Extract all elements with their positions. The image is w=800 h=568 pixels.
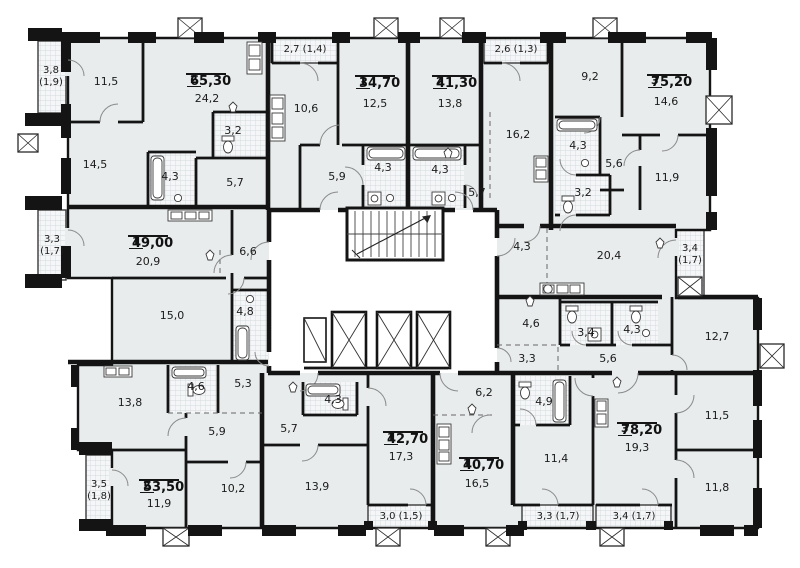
- room-area-label: 4,3: [374, 162, 392, 174]
- bathtub-icon: [236, 326, 249, 360]
- room-area-label: 15,0: [160, 310, 185, 322]
- balcony-area-label: 3,4 (1,7): [613, 511, 656, 523]
- room-area-label: 3,2: [574, 187, 592, 199]
- room-area-label: 13,9: [305, 481, 330, 493]
- apartment-label: 241,30: [432, 75, 472, 77]
- room-area-label: 4,3: [431, 164, 449, 176]
- sink-icon: [386, 194, 393, 201]
- room-area-label: 11,5: [94, 76, 119, 88]
- room-area-label: 16,5: [465, 478, 490, 490]
- stove-icon: [270, 95, 285, 141]
- room-area-label: 16,2: [506, 129, 531, 141]
- apartment-label: 265,30: [186, 73, 226, 75]
- sink-icon: [174, 194, 181, 201]
- room-area-label: 5,7: [280, 423, 298, 435]
- room-area-label: 11,8: [705, 482, 730, 494]
- floor-plan: 265,30134,70241,30375,20149,00253,50142,…: [0, 0, 800, 568]
- apartment-label: 142,70: [383, 431, 423, 433]
- balcony-area-label: 3,8 (1,9): [39, 65, 63, 89]
- balcony-area-label: 2,6 (1,3): [495, 44, 538, 56]
- bathtub-icon: [367, 147, 405, 160]
- room-area-label: 4,6: [187, 381, 205, 393]
- room-area-label: 19,3: [625, 442, 650, 454]
- room-area-label: 4,3: [623, 324, 641, 336]
- apartment-total-area: 42,70: [384, 432, 431, 448]
- stove-icon: [247, 42, 262, 74]
- room-area-label: 20,4: [597, 250, 622, 262]
- washer-icon: [432, 192, 445, 205]
- room-area-label: 11,5: [705, 410, 730, 422]
- room-area-label: 5,9: [208, 426, 226, 438]
- room-area-label: 14,6: [654, 96, 679, 108]
- sink-icon: [246, 295, 253, 302]
- room-area-label: 3,4: [577, 327, 595, 339]
- ac-unit-icon: [600, 528, 624, 546]
- apartment-total-area: 41,30: [433, 76, 480, 92]
- room-area-label: 20,9: [136, 256, 161, 268]
- room-area-label: 6,6: [239, 246, 257, 258]
- room-area-label: 4,3: [513, 241, 531, 253]
- bathtub-icon: [413, 147, 461, 160]
- room-area-label: 4,3: [324, 394, 342, 406]
- apartment-total-area: 49,00: [129, 236, 176, 252]
- apartment-total-area: 53,50: [140, 480, 187, 496]
- room-area-label: 6,2: [475, 387, 493, 399]
- apartment-label: 375,20: [647, 74, 687, 76]
- room-area-label: 5,7: [468, 187, 486, 199]
- room-area-label: 5,7: [226, 177, 244, 189]
- room-area-label: 5,6: [599, 353, 617, 365]
- ac-unit-icon: [678, 277, 702, 296]
- staircase: [347, 208, 443, 260]
- room-area-label: 11,4: [544, 453, 569, 465]
- room-area-label: 12,7: [705, 331, 730, 343]
- stove-icon: [168, 210, 212, 221]
- apartment-label: 149,00: [128, 235, 168, 237]
- room-area-label: 13,8: [438, 98, 463, 110]
- sink-icon: [581, 159, 588, 166]
- room-area-label: 3,3: [518, 353, 536, 365]
- room-area-label: 12,5: [363, 98, 388, 110]
- apartment-total-area: 40,70: [460, 458, 507, 474]
- balcony-area-label: 3,5 (1,8): [87, 479, 111, 503]
- bathtub-icon: [553, 380, 566, 422]
- room-area-label: 17,3: [389, 451, 414, 463]
- apartment-total-area: 65,30: [187, 74, 234, 90]
- room-area-label: 10,6: [294, 103, 319, 115]
- balcony-area-label: 3,4 (1,7): [678, 243, 702, 267]
- balcony-area-label: 3,0 (1,5): [380, 511, 423, 523]
- room-area-label: 4,6: [522, 318, 540, 330]
- ac-unit-icon: [18, 134, 38, 152]
- room-area-label: 24,2: [195, 93, 220, 105]
- stove-icon: [595, 399, 608, 427]
- washer-icon: [368, 192, 381, 205]
- room-area-label: 11,9: [147, 498, 172, 510]
- room-area-label: 4,3: [161, 171, 179, 183]
- room-area-label: 11,9: [655, 172, 680, 184]
- elevators: [304, 312, 450, 368]
- ac-unit-icon: [163, 528, 189, 546]
- room-area-label: 5,6: [605, 158, 623, 170]
- room-area-label: 4,9: [535, 396, 553, 408]
- room-area-label: 10,2: [221, 483, 246, 495]
- sink-icon: [448, 194, 455, 201]
- bathtub-icon: [172, 367, 206, 378]
- balcony-area-label: 3,3 (1,7): [40, 234, 64, 258]
- apartment-total-area: 34,70: [356, 76, 403, 92]
- sink-icon: [544, 285, 552, 293]
- stove-icon: [534, 156, 548, 182]
- apartment-label: 140,70: [459, 457, 499, 459]
- apartment-label: 253,50: [139, 479, 179, 481]
- ac-unit-icon: [706, 96, 732, 124]
- bathtub-icon: [557, 119, 597, 131]
- balcony-area-label: 2,7 (1,4): [284, 44, 327, 56]
- ac-unit-icon: [374, 18, 398, 38]
- room-area-label: 5,3: [234, 378, 252, 390]
- room-area-label: 4,3: [569, 140, 587, 152]
- apartment-label: 378,20: [617, 422, 657, 424]
- ac-unit-icon: [760, 344, 784, 368]
- balcony-area-label: 3,3 (1,7): [537, 511, 580, 523]
- room-area-label: 13,8: [118, 397, 143, 409]
- stove-icon: [437, 424, 451, 464]
- apartment-total-area: 75,20: [648, 75, 695, 91]
- apartment-total-area: 78,20: [618, 423, 665, 439]
- stove-icon: [104, 366, 132, 377]
- sink-icon: [642, 329, 649, 336]
- room-area-label: 3,2: [224, 125, 242, 137]
- ac-unit-icon: [440, 18, 464, 38]
- room-area-label: 5,9: [328, 171, 346, 183]
- room-area-label: 14,5: [83, 159, 108, 171]
- apartment-label: 134,70: [355, 75, 395, 77]
- room-area-label: 9,2: [581, 71, 599, 83]
- room-area-label: 4,8: [236, 306, 254, 318]
- ac-unit-icon: [376, 528, 400, 546]
